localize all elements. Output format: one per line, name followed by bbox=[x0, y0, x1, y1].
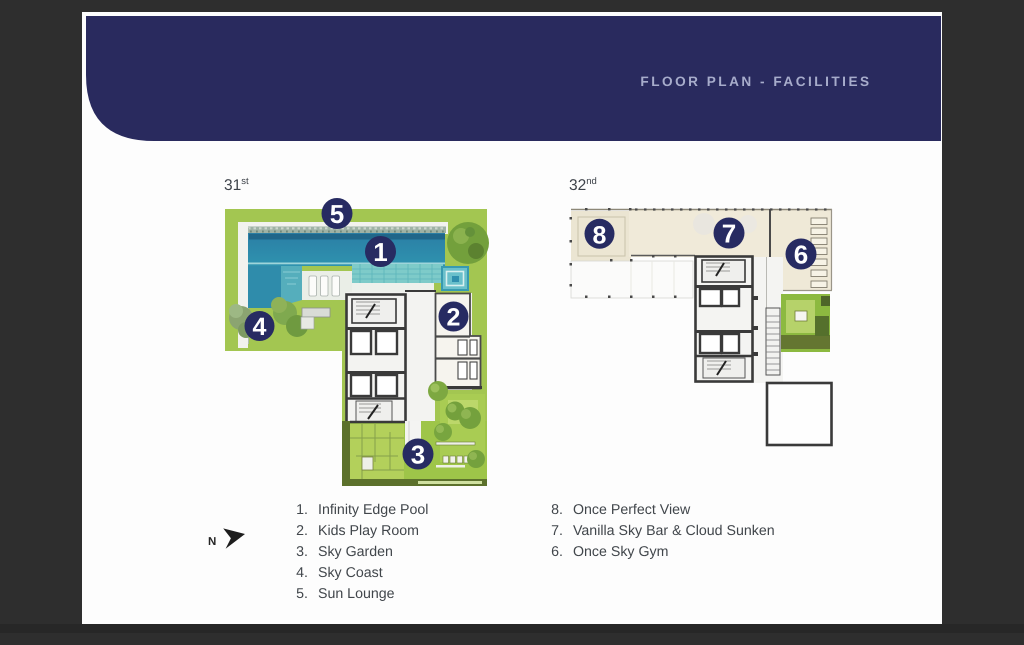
svg-text:5: 5 bbox=[330, 199, 344, 229]
svg-text:7.: 7. bbox=[551, 523, 563, 539]
svg-text:8: 8 bbox=[593, 221, 607, 249]
svg-text:Once Perfect View: Once Perfect View bbox=[573, 502, 691, 518]
svg-text:4: 4 bbox=[253, 313, 267, 341]
svg-text:2: 2 bbox=[447, 304, 461, 332]
svg-text:5.: 5. bbox=[296, 586, 308, 602]
svg-text:7: 7 bbox=[722, 219, 736, 249]
svg-text:Vanilla Sky Bar & Cloud Sunken: Vanilla Sky Bar & Cloud Sunken bbox=[573, 523, 775, 539]
svg-text:8.: 8. bbox=[551, 502, 563, 518]
svg-text:6.: 6. bbox=[551, 544, 563, 560]
svg-text:Infinity Edge Pool: Infinity Edge Pool bbox=[318, 502, 428, 518]
svg-text:Sky Garden: Sky Garden bbox=[318, 544, 393, 560]
svg-text:N: N bbox=[208, 536, 216, 548]
svg-text:Kids Play Room: Kids Play Room bbox=[318, 523, 419, 539]
svg-text:FLOOR PLAN - FACILITIES: FLOOR PLAN - FACILITIES bbox=[640, 74, 871, 89]
svg-text:Sky Coast: Sky Coast bbox=[318, 565, 383, 581]
svg-text:4.: 4. bbox=[296, 565, 308, 581]
svg-text:1.: 1. bbox=[296, 502, 308, 518]
svg-text:1: 1 bbox=[373, 237, 387, 267]
svg-text:6: 6 bbox=[794, 240, 808, 270]
svg-text:Sun Lounge: Sun Lounge bbox=[318, 586, 395, 602]
svg-text:Once Sky Gym: Once Sky Gym bbox=[573, 544, 668, 560]
svg-text:3.: 3. bbox=[296, 544, 308, 560]
svg-text:3: 3 bbox=[411, 440, 425, 470]
svg-text:2.: 2. bbox=[296, 523, 308, 539]
